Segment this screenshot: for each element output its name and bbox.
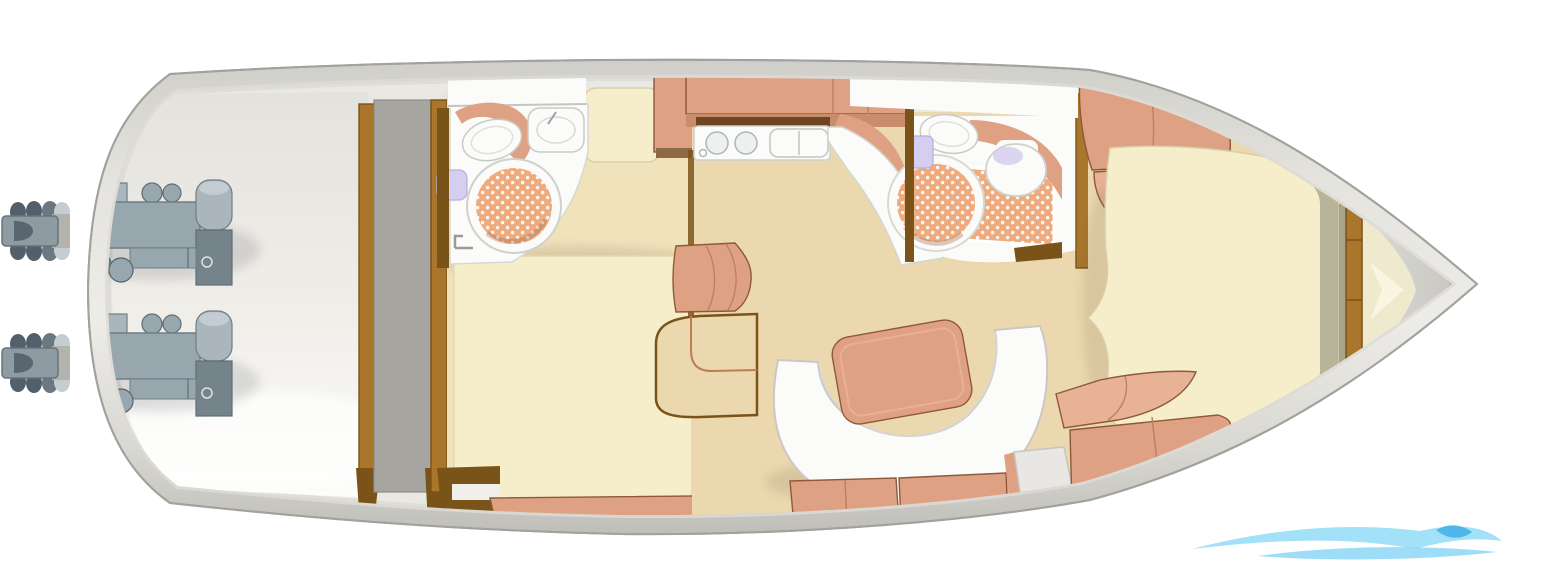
yacht-floor-plan-image: [0, 0, 1560, 577]
mid-head: [888, 94, 1089, 268]
engine-gearbox: [196, 230, 232, 285]
galley-burner: [706, 132, 728, 154]
bulkhead-panel: [374, 100, 431, 492]
galley-burner: [735, 132, 757, 154]
engine-filter: [142, 183, 162, 203]
bulkhead-post: [359, 104, 374, 476]
wave-logo-watermark: [1192, 525, 1502, 559]
mid-head-wall-left: [905, 100, 914, 262]
engine-base: [130, 248, 196, 268]
aft-wardrobe: [584, 88, 660, 162]
stern-drive-port: [2, 201, 70, 261]
engine-filter: [163, 184, 181, 202]
mid-sink-glow: [993, 147, 1023, 165]
wave-swoosh-lower: [1258, 547, 1497, 559]
companionway-nook: [656, 314, 757, 417]
engine-end-cap: [199, 181, 229, 195]
stern-drive-starboard: [2, 333, 70, 393]
engine-pulley: [109, 258, 133, 282]
yacht-floor-plan: [0, 0, 1560, 577]
aft-head-wall: [437, 108, 449, 268]
